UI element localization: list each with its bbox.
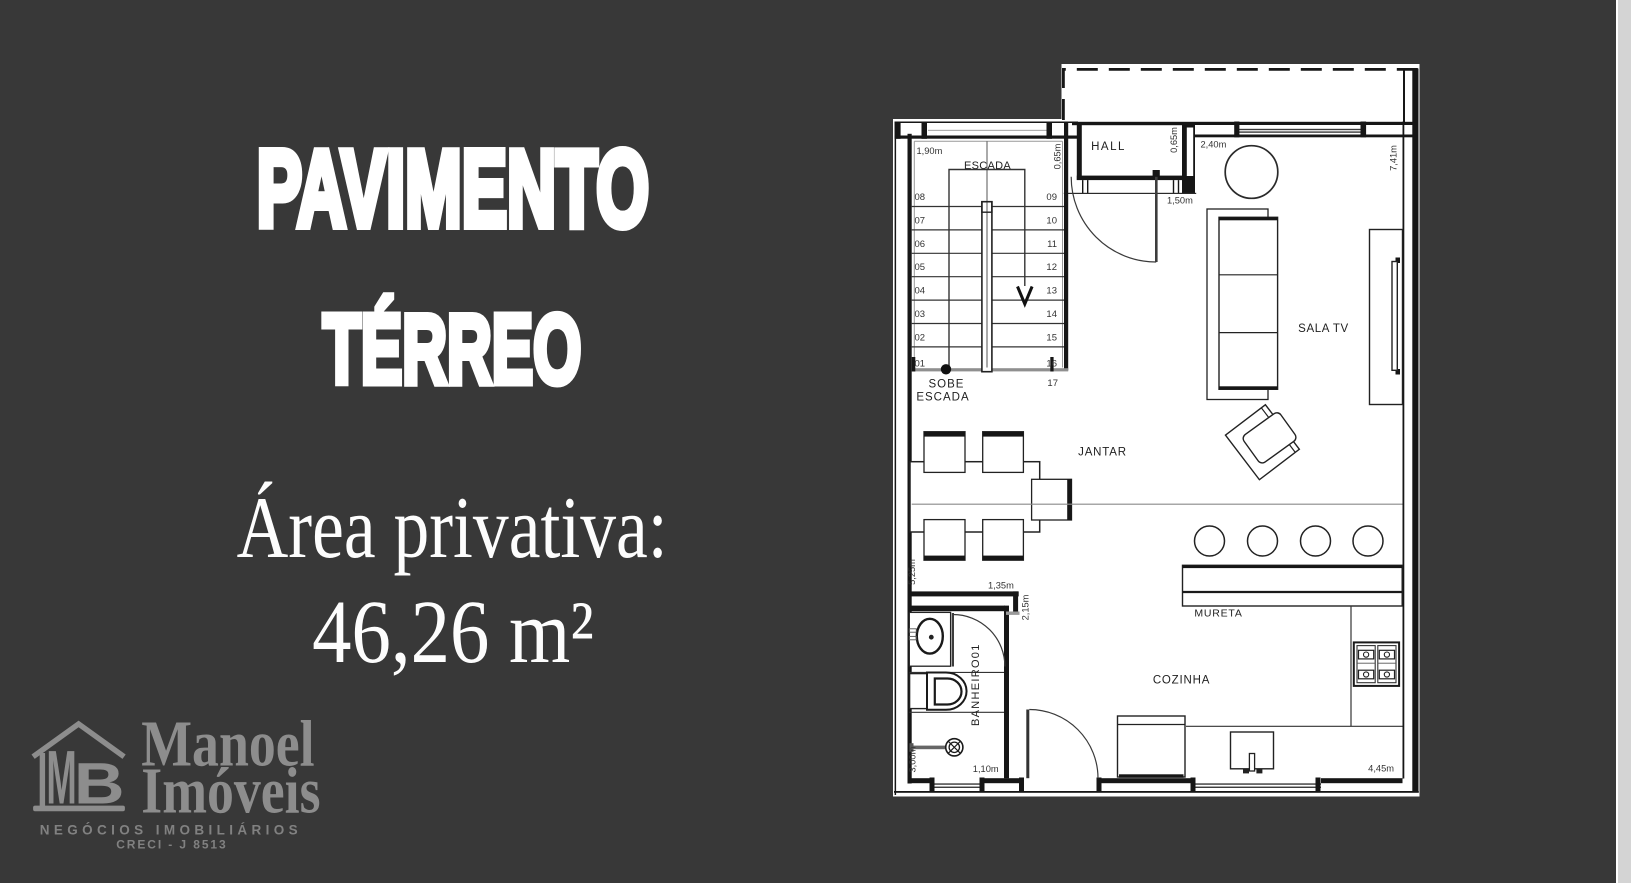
svg-text:7,41m: 7,41m — [1389, 145, 1399, 171]
svg-text:12: 12 — [1046, 262, 1057, 273]
svg-text:2,40m: 2,40m — [1201, 140, 1227, 150]
svg-text:06: 06 — [915, 239, 926, 250]
svg-text:0,65m: 0,65m — [1169, 127, 1179, 153]
svg-text:1,50m: 1,50m — [1167, 196, 1193, 206]
svg-text:MURETA: MURETA — [1194, 608, 1242, 620]
svg-text:16: 16 — [1046, 358, 1057, 369]
svg-text:07: 07 — [915, 215, 926, 226]
svg-text:SOBE: SOBE — [929, 379, 965, 391]
svg-text:4,45m: 4,45m — [1368, 764, 1394, 774]
svg-text:05: 05 — [915, 262, 926, 273]
svg-text:08: 08 — [915, 192, 926, 203]
svg-text:ESCADA: ESCADA — [964, 160, 1011, 172]
svg-text:COZINHA: COZINHA — [1153, 675, 1210, 687]
svg-text:0,65m: 0,65m — [1053, 143, 1063, 169]
svg-text:HALL: HALL — [1091, 141, 1126, 153]
svg-text:JANTAR: JANTAR — [1078, 447, 1127, 459]
svg-text:3,00m: 3,00m — [908, 746, 918, 772]
svg-text:17: 17 — [1047, 378, 1058, 389]
svg-text:04: 04 — [915, 286, 926, 297]
svg-text:09: 09 — [1046, 192, 1057, 203]
svg-text:1,10m: 1,10m — [973, 764, 999, 774]
svg-text:11: 11 — [1047, 239, 1057, 250]
svg-text:15: 15 — [1046, 332, 1057, 343]
svg-text:SALA TV: SALA TV — [1298, 323, 1349, 335]
svg-text:01: 01 — [915, 358, 926, 369]
svg-text:5,25m: 5,25m — [907, 559, 917, 585]
svg-text:1,90m: 1,90m — [917, 146, 943, 156]
svg-text:ESCADA: ESCADA — [916, 392, 969, 404]
svg-text:10: 10 — [1046, 215, 1057, 226]
svg-text:03: 03 — [915, 309, 926, 320]
svg-text:1,35m: 1,35m — [988, 580, 1014, 590]
svg-text:2,15m: 2,15m — [1021, 594, 1031, 620]
svg-text:14: 14 — [1046, 309, 1057, 320]
svg-text:13: 13 — [1046, 286, 1057, 297]
svg-text:BANHEIRO01: BANHEIRO01 — [970, 643, 982, 726]
svg-text:02: 02 — [915, 332, 926, 343]
